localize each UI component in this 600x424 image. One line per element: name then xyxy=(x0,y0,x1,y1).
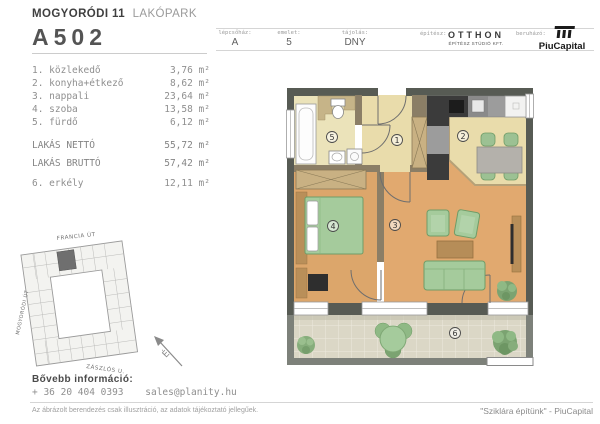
hall-wardrobe xyxy=(412,117,427,168)
bedroom-wardrobe xyxy=(296,170,366,189)
developer-label: beruházó: xyxy=(516,31,546,37)
sofa-icon xyxy=(424,261,485,290)
svg-text:3: 3 xyxy=(392,221,397,230)
bathtub-icon xyxy=(296,104,316,164)
total-area: 55,72 m² xyxy=(164,137,210,155)
coffee-table xyxy=(437,241,473,258)
architect-logo: OTTHON ÉPÍTÉSZ STÚDIÓ KFT. xyxy=(440,30,512,46)
unit-info-strip: lépcsőház: A emelet: 5 tájolás: DNY épít… xyxy=(216,28,594,51)
kitchen-sink-icon xyxy=(472,100,484,112)
washing-machine-icon xyxy=(347,149,362,164)
disclaimer-text: Az ábrázolt berendezés csak illusztráció… xyxy=(32,407,258,414)
room-area: 8,62 m² xyxy=(170,77,210,90)
balcony-area-row: 6. erkély 12,11 m² xyxy=(32,177,210,190)
fridge-icon xyxy=(505,96,526,117)
info-staircase-value: A xyxy=(216,37,254,48)
armchair-icon xyxy=(454,209,480,238)
tv-stand xyxy=(296,268,307,298)
info-staircase-label: lépcsőház: xyxy=(216,30,254,36)
dining-table xyxy=(477,147,522,173)
footer-divider xyxy=(30,402,593,403)
svg-text:5: 5 xyxy=(329,133,334,142)
room-row: 3. nappali 23,64 m² xyxy=(32,90,210,103)
architect-name: OTTHON xyxy=(440,30,512,40)
balcony-door-living xyxy=(488,302,528,315)
siteplan: FRANCIA ÚT MOGYORÓDI ÚT ZÁSZLÓS U. É xyxy=(8,230,198,375)
phone-number[interactable]: + 36 20 404 0393 xyxy=(32,387,124,398)
window-left-wall xyxy=(287,110,295,158)
window-right-wall xyxy=(526,94,534,118)
contact-line: + 36 20 404 0393 sales@planity.hu xyxy=(32,387,237,398)
floorplan: 1 2 3 4 5 6 xyxy=(278,80,540,372)
balcony-window-middle xyxy=(362,302,427,315)
page-title: MOGYORÓDI 11 LAKÓPARK xyxy=(32,8,197,20)
room-label-4: 4 xyxy=(328,221,339,232)
room-list: 1. közlekedő 3,76 m² 2. konyha+étkező 8,… xyxy=(32,64,210,190)
room-area: 23,64 m² xyxy=(164,90,210,103)
info-floor-label: emelet: xyxy=(270,30,308,36)
plant-icon xyxy=(497,281,517,301)
slogan-text: "Sziklára építünk" - PiuCapital xyxy=(343,406,593,416)
room-label-2: 2 xyxy=(458,131,469,142)
room-label-5: 5 xyxy=(327,132,338,143)
room-name: 4. szoba xyxy=(32,103,78,116)
room-area: 3,76 m² xyxy=(170,64,210,77)
more-info-label: Bővebb információ: xyxy=(32,374,133,385)
total-name: LAKÁS BRUTTÓ xyxy=(32,155,101,173)
plant-icon xyxy=(297,336,315,354)
developer-name: PiuCapital xyxy=(530,41,594,52)
info-orientation-value: DNY xyxy=(334,37,376,48)
svg-text:1: 1 xyxy=(394,136,399,145)
total-net-row: LAKÁS NETTÓ 55,72 m² xyxy=(32,137,210,155)
sink-icon xyxy=(329,151,345,164)
room-row: 4. szoba 13,58 m² xyxy=(32,103,210,116)
info-floor-value: 5 xyxy=(270,37,308,48)
unit-underline xyxy=(32,53,207,54)
room-row: 1. közlekedő 3,76 m² xyxy=(32,64,210,77)
area-totals: LAKÁS NETTÓ 55,72 m² LAKÁS BRUTTÓ 57,42 … xyxy=(32,137,210,173)
room-name: 6. erkély xyxy=(32,177,83,190)
info-staircase: lépcsőház: A xyxy=(216,29,254,48)
info-orientation: tájolás: DNY xyxy=(334,29,376,48)
total-gross-row: LAKÁS BRUTTÓ 57,42 m² xyxy=(32,155,210,173)
cooktop-icon xyxy=(448,100,464,113)
svg-text:6: 6 xyxy=(452,329,457,338)
glass-railing xyxy=(487,358,533,366)
room-name: 1. közlekedő xyxy=(32,64,101,77)
balcony-door-bedroom xyxy=(294,302,328,315)
unit-id: A502 xyxy=(32,24,107,51)
svg-text:4: 4 xyxy=(330,222,335,231)
svg-text:2: 2 xyxy=(460,132,465,141)
toilet-icon xyxy=(331,99,345,119)
architect-subtitle: ÉPÍTÉSZ STÚDIÓ KFT. xyxy=(440,41,512,46)
room-row: 2. konyha+étkező 8,62 m² xyxy=(32,77,210,90)
info-orientation-label: tájolás: xyxy=(334,30,376,36)
room-name: 3. nappali xyxy=(32,90,89,103)
room-name: 5. fürdő xyxy=(32,116,78,129)
armchair-icon xyxy=(427,210,449,236)
siteplan-highlighted-unit xyxy=(57,250,76,271)
room-area: 6,12 m² xyxy=(170,116,210,129)
info-floor: emelet: 5 xyxy=(270,29,308,48)
total-area: 57,42 m² xyxy=(164,155,210,173)
street-mogyorodi: MOGYORÓDI ÚT xyxy=(14,289,30,336)
room-area: 12,11 m² xyxy=(164,177,210,190)
street-francia: FRANCIA ÚT xyxy=(56,231,96,242)
siteplan-building xyxy=(21,241,138,366)
piucapital-column-icon xyxy=(548,25,578,42)
project-name-light: LAKÓPARK xyxy=(133,8,197,20)
tv-board xyxy=(511,216,522,272)
tv-icon xyxy=(308,274,328,291)
project-name-bold: MOGYORÓDI 11 xyxy=(32,8,125,20)
room-row: 5. fürdő 6,12 m² xyxy=(32,116,210,129)
room-area: 13,58 m² xyxy=(164,103,210,116)
room-label-3: 3 xyxy=(390,220,401,231)
total-name: LAKÁS NETTÓ xyxy=(32,137,95,155)
room-label-6: 6 xyxy=(450,328,461,339)
email-link[interactable]: sales@planity.hu xyxy=(145,387,237,398)
room-label-1: 1 xyxy=(392,135,403,146)
north-arrow-icon: É xyxy=(154,336,182,366)
room-name: 2. konyha+étkező xyxy=(32,77,124,90)
